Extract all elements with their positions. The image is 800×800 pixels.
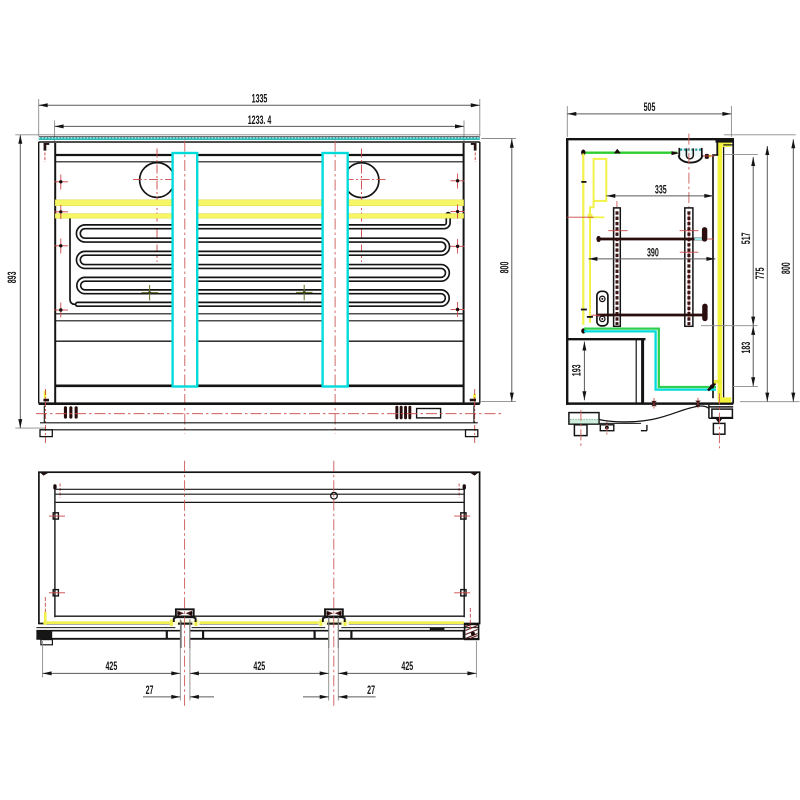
svg-text:1233. 4: 1233. 4 [248, 114, 272, 127]
svg-text:27: 27 [146, 684, 154, 697]
svg-text:425: 425 [105, 660, 117, 673]
svg-text:800: 800 [780, 262, 793, 274]
svg-text:775: 775 [754, 267, 767, 279]
svg-text:425: 425 [401, 660, 413, 673]
svg-text:425: 425 [253, 660, 265, 673]
svg-text:183: 183 [740, 341, 753, 353]
svg-text:517: 517 [740, 232, 753, 244]
svg-text:27: 27 [367, 684, 375, 697]
svg-text:193: 193 [571, 364, 584, 376]
svg-text:893: 893 [6, 271, 19, 283]
svg-text:800: 800 [499, 262, 512, 274]
svg-text:1335: 1335 [252, 93, 268, 106]
svg-text:335: 335 [655, 184, 667, 197]
svg-text:390: 390 [647, 247, 659, 260]
svg-text:505: 505 [644, 101, 656, 114]
